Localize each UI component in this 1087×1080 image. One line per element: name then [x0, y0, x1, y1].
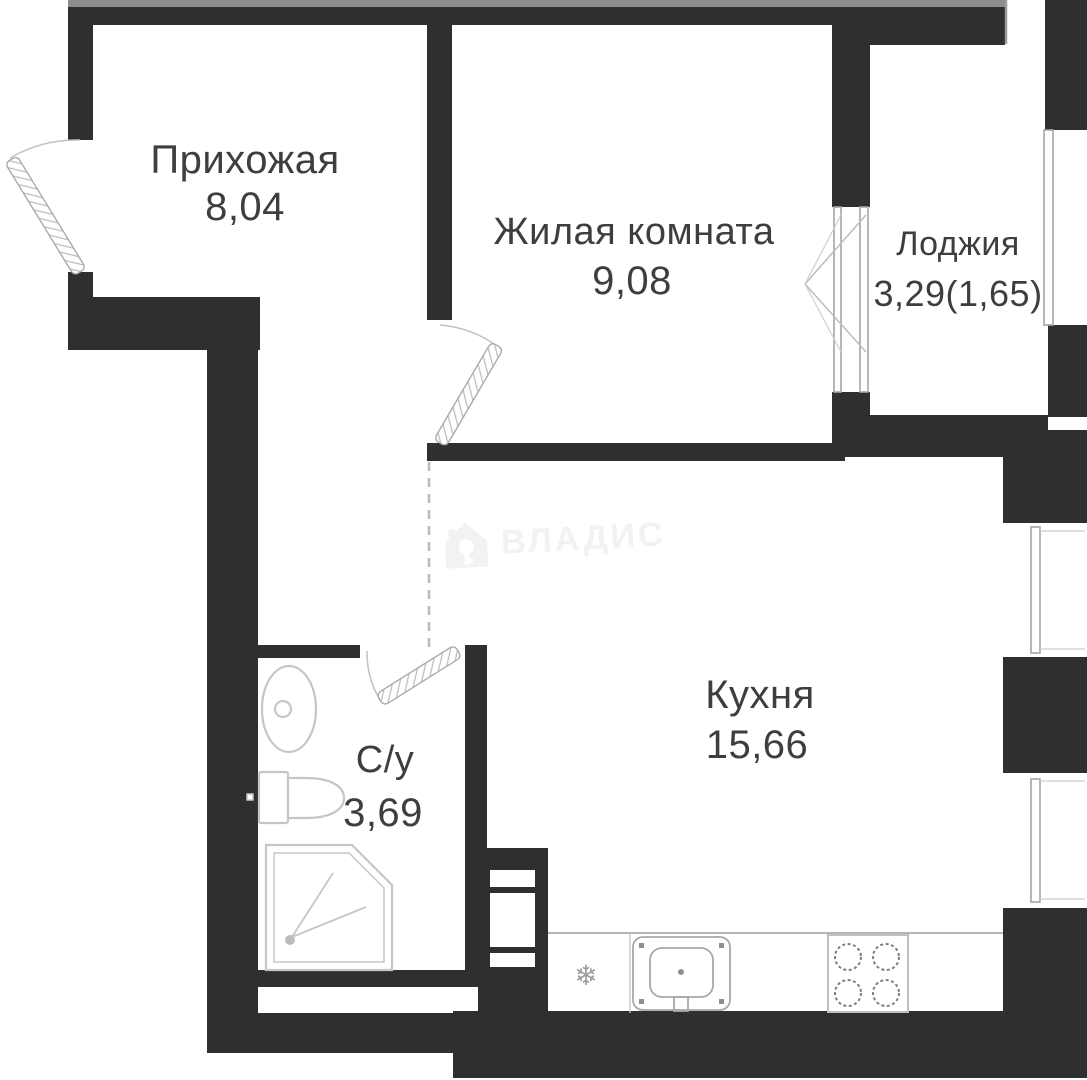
wall-segment: [68, 0, 1005, 8]
vent-shaft: [478, 848, 548, 1013]
wall-segment: [453, 1011, 1087, 1078]
stove: [828, 935, 908, 1012]
kitchen-area: 15,66: [706, 725, 809, 765]
hallway-label: Прихожая: [150, 140, 339, 180]
wall-segment: [68, 7, 93, 140]
wall-segment: [1045, 0, 1087, 130]
wall-segment: [207, 350, 258, 1040]
loggia-label: Лоджия: [896, 227, 1019, 261]
wall-segment: [1003, 430, 1087, 523]
kitchen-counter: [548, 933, 1003, 1013]
snowflake-fridge-icon: ❄: [574, 959, 597, 992]
loggia-living-window: [834, 207, 868, 392]
living-room-door: [434, 325, 503, 447]
kitchen-window-1: [1031, 527, 1085, 653]
loggia-area: 3,29(1,65): [873, 276, 1042, 312]
kitchen-label: Кухня: [705, 675, 815, 715]
living-room-area: 9,08: [592, 261, 672, 301]
bathroom-area: 3,69: [343, 793, 423, 833]
loggia-right-window: [1044, 130, 1053, 325]
hallway-area: 8,04: [205, 187, 285, 227]
wall-segment: [207, 1013, 493, 1053]
wall-segment: [1003, 657, 1087, 773]
wall-segment: [258, 645, 360, 658]
living-room-label: Жилая комната: [494, 213, 775, 251]
bathroom-label: С/у: [356, 741, 415, 779]
wall-segment: [68, 272, 93, 297]
toilet: [247, 772, 344, 823]
wall-segment: [207, 970, 487, 987]
floor-plan: ВЛАДИС: [0, 0, 1087, 1080]
wall-segment: [1048, 325, 1087, 417]
wall-segment: [832, 25, 870, 207]
wall-segment: [68, 297, 260, 350]
kitchen-sink: [633, 937, 730, 1011]
watermark-text: ВЛАДИС: [500, 515, 666, 563]
house-key-icon: [442, 519, 490, 569]
wall-segment: [68, 7, 832, 25]
shower-cabin: [266, 845, 392, 970]
wall-segment: [427, 25, 452, 320]
wall-segment: [427, 443, 845, 461]
bathroom-sink: [262, 666, 316, 752]
entrance-door: [5, 140, 86, 276]
kitchen-window-2: [1031, 779, 1085, 902]
bathroom-door: [367, 645, 462, 706]
